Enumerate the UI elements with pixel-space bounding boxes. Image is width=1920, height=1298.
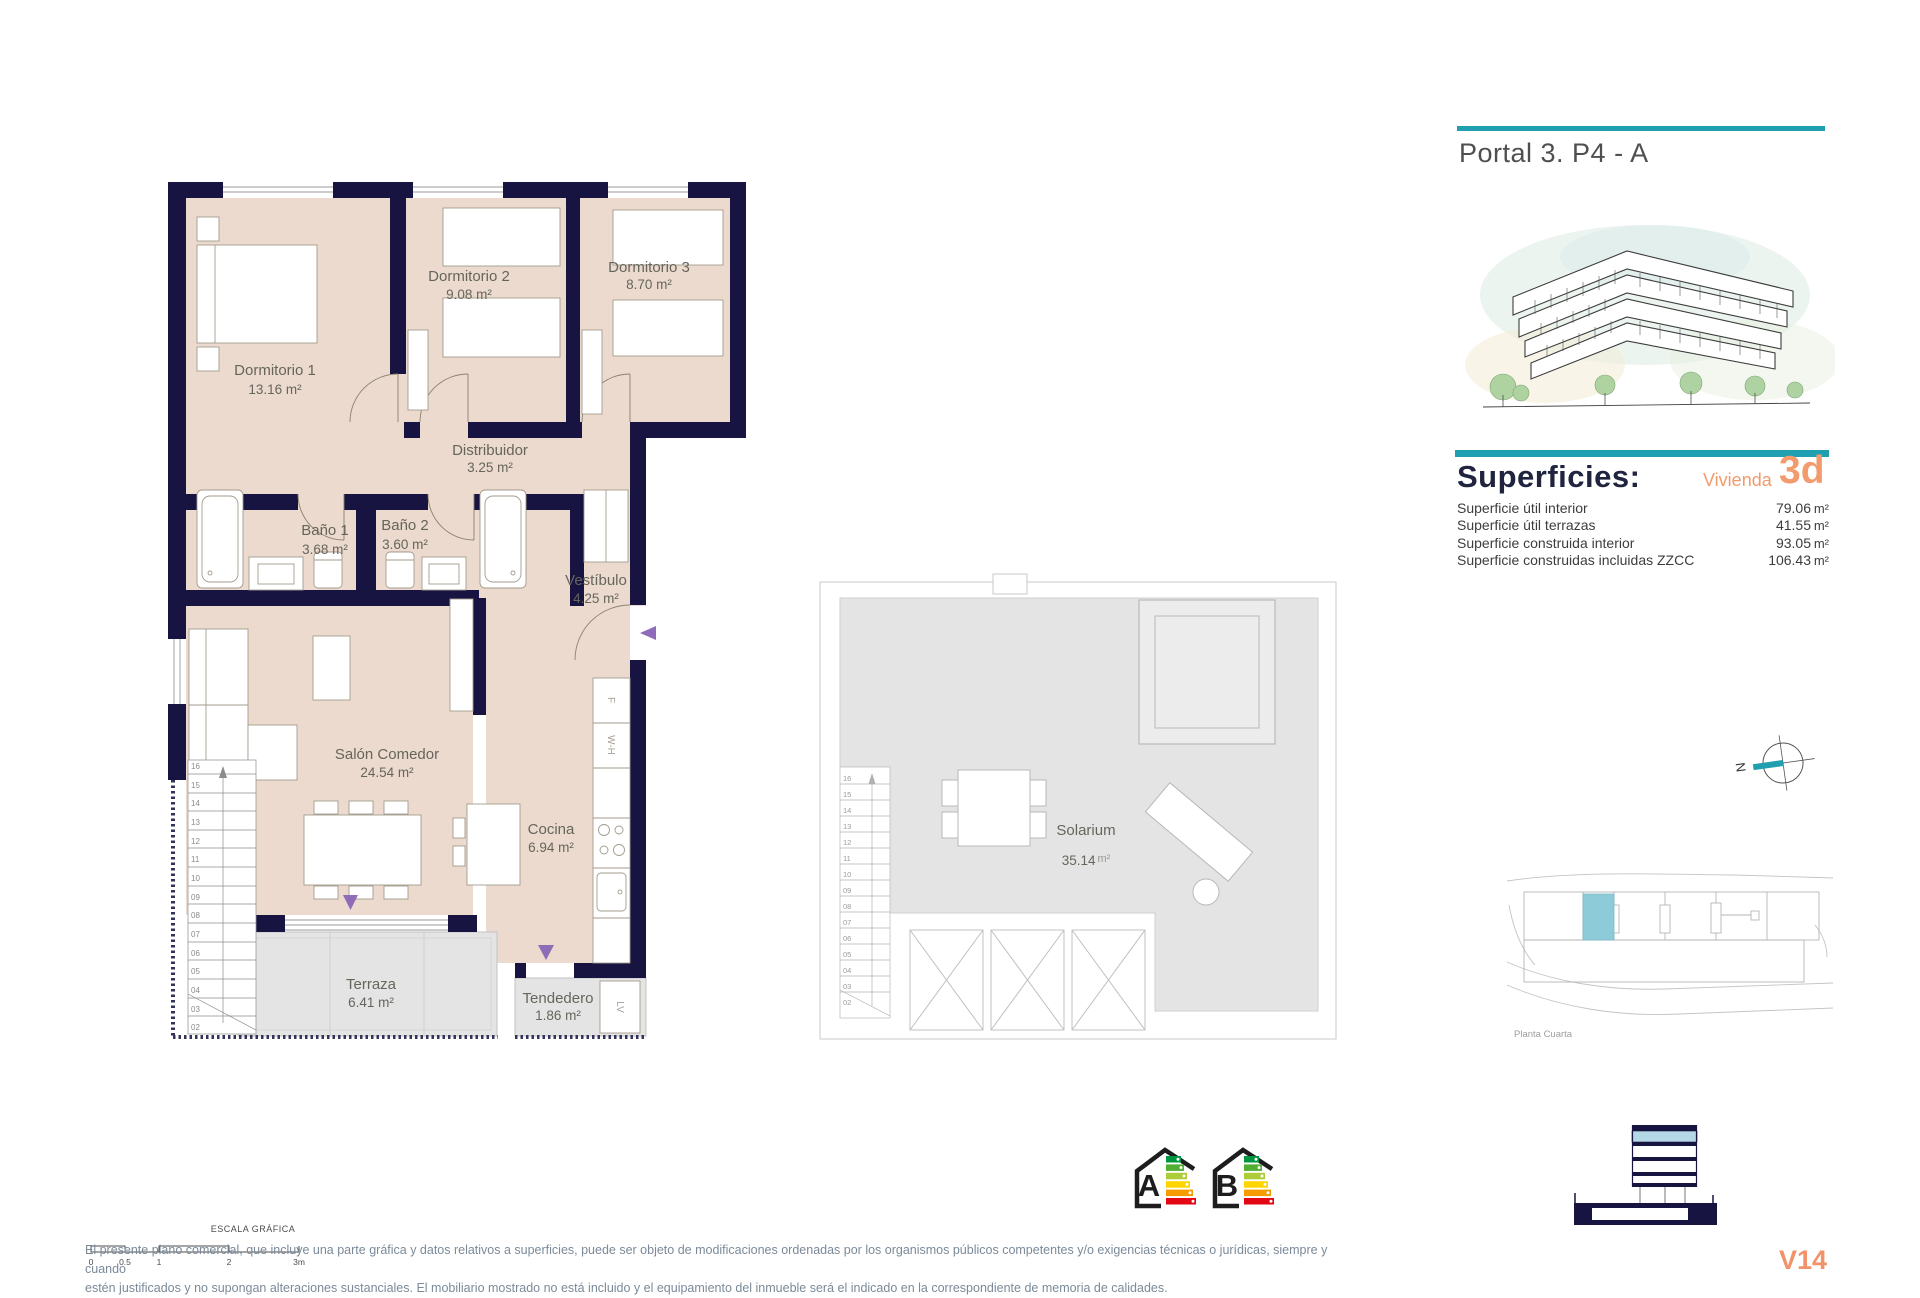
- stair-numbers-solarium: 16 15 14 13 12 11 10 09 08 07 06 05 04 0…: [843, 774, 851, 1007]
- svg-text:09: 09: [843, 886, 851, 895]
- svg-text:10: 10: [843, 870, 851, 879]
- svg-text:03: 03: [191, 1005, 200, 1014]
- svg-text:02: 02: [191, 1023, 200, 1032]
- svg-text:13: 13: [191, 818, 200, 827]
- superficies-table: Superficie útil interior 79.06 m² Superf…: [1457, 500, 1829, 570]
- svg-text:15: 15: [843, 790, 851, 799]
- svg-text:16: 16: [191, 762, 200, 771]
- tv-unit: [313, 636, 350, 700]
- energy-badge-b-icon: B: [1208, 1144, 1282, 1212]
- svg-text:03: 03: [843, 982, 851, 991]
- svg-text:08: 08: [191, 911, 200, 920]
- section-highlight-floor: [1632, 1131, 1697, 1142]
- svg-text:3.25 m²: 3.25 m²: [467, 460, 513, 475]
- svg-text:14: 14: [843, 806, 851, 815]
- svg-text:9.08 m²: 9.08 m²: [446, 287, 492, 302]
- superficies-row: Superficie útil terrazas 41.55 m²: [1457, 517, 1829, 534]
- superficies-row: Superficie útil interior 79.06 m²: [1457, 500, 1829, 517]
- page: { "header": { "title": "Portal 3. P4 - A…: [0, 0, 1920, 1280]
- building-section: [1565, 1115, 1740, 1233]
- svg-text:09: 09: [191, 893, 200, 902]
- section-tower: [1632, 1125, 1697, 1187]
- compass-icon: N: [1735, 733, 1827, 795]
- svg-text:06: 06: [191, 949, 200, 958]
- washer-label: LV: [614, 1001, 625, 1013]
- water-heater-label: W-H: [605, 735, 616, 755]
- label-terraza: Terraza: [346, 976, 397, 993]
- vestibulo-wardrobe: [584, 490, 628, 562]
- svg-text:12: 12: [843, 838, 851, 847]
- superficies-row: Superficie construidas incluidas ZZCC 10…: [1457, 552, 1829, 569]
- solarium-skylight-box: [1139, 600, 1275, 744]
- dorm2-closet: [408, 330, 428, 410]
- label-dormitorio3: Dormitorio 3: [608, 259, 690, 276]
- svg-text:8.70 m²: 8.70 m²: [626, 277, 672, 292]
- page-title: Portal 3. P4 - A: [1459, 138, 1649, 169]
- svg-text:04: 04: [191, 986, 200, 995]
- dorm3-closet: [582, 330, 602, 414]
- svg-text:13.16 m²: 13.16 m²: [248, 382, 302, 397]
- energy-bars: [1166, 1156, 1196, 1205]
- version-tag: V14: [1779, 1245, 1827, 1276]
- solarium-plan: 16 15 14 13 12 11 10 09 08 07 06 05 04 0…: [814, 558, 1344, 1045]
- label-cocina: Cocina: [528, 821, 575, 838]
- label-tendedero: Tendedero: [523, 990, 594, 1007]
- site-plan-caption: Planta Cuarta: [1514, 1029, 1573, 1040]
- energy-badge-a-icon: A: [1130, 1144, 1204, 1212]
- entrance-arrow: [640, 626, 656, 640]
- svg-text:Solarium: Solarium: [1056, 822, 1115, 839]
- stairs-solarium: 16 15 14 13 12 11 10 09 08 07 06 05 04 0…: [840, 767, 890, 1018]
- title-rule: [1457, 126, 1825, 131]
- svg-text:12: 12: [191, 837, 200, 846]
- svg-text:08: 08: [843, 902, 851, 911]
- kitchen-cabinet: [450, 599, 473, 711]
- site-roads: [1507, 874, 1833, 1015]
- svg-text:07: 07: [191, 930, 200, 939]
- svg-text:3.68 m²: 3.68 m²: [302, 542, 348, 557]
- svg-text:14: 14: [191, 799, 200, 808]
- svg-text:6.41 m²: 6.41 m²: [348, 995, 394, 1010]
- svg-text:11: 11: [191, 855, 200, 864]
- disclaimer: El presente plano comercial, que incluye…: [85, 1241, 1355, 1298]
- svg-text:05: 05: [191, 967, 200, 976]
- site-plan: Planta Cuarta: [1505, 865, 1835, 1045]
- svg-text:04: 04: [843, 966, 851, 975]
- svg-text:4.25 m²: 4.25 m²: [573, 591, 619, 606]
- superficies-row: Superficie construida interior 93.05 m²: [1457, 535, 1829, 552]
- energy-rating-letter: B: [1216, 1168, 1238, 1203]
- label-distribuidor: Distribuidor: [452, 442, 528, 459]
- label-vestibulo: Vestíbulo: [565, 572, 627, 589]
- north-label: N: [1735, 762, 1749, 773]
- vivienda-code: 3d: [1779, 449, 1825, 493]
- stair-numbers-main: 16 15 14 13 12 11 10 09 08 07 06 05 04 0…: [191, 762, 200, 1032]
- superficies-heading: Superficies:: [1457, 459, 1640, 495]
- dining-table: [304, 801, 421, 899]
- building-sketch: [1455, 195, 1835, 435]
- svg-text:06: 06: [843, 934, 851, 943]
- label-bano2: Baño 2: [381, 517, 429, 534]
- fridge-label: F: [605, 697, 616, 703]
- disclaimer-line-1: El presente plano comercial, que incluye…: [85, 1241, 1355, 1279]
- svg-text:02: 02: [843, 998, 851, 1007]
- stairs-main: 16 15 14 13 12 11 10 09 08 07 06 05 04 0…: [188, 760, 256, 1034]
- energy-rating-letter: A: [1138, 1168, 1160, 1203]
- svg-text:24.54 m²: 24.54 m²: [360, 765, 414, 780]
- site-building: [1524, 892, 1819, 982]
- vivienda-label: Vivienda: [1703, 470, 1772, 491]
- svg-text:1.86 m²: 1.86 m²: [535, 1008, 581, 1023]
- label-dormitorio2: Dormitorio 2: [428, 268, 510, 285]
- main-floor-plan: 16 15 14 13 12 11 10 09 08 07 06 05 04 0…: [168, 178, 748, 1044]
- svg-text:16: 16: [843, 774, 851, 783]
- label-salon: Salón Comedor: [335, 746, 439, 763]
- disclaimer-line-2: estén justificados y no supongan alterac…: [85, 1279, 1355, 1298]
- label-bano1: Baño 1: [301, 522, 349, 539]
- highlighted-unit: [1583, 894, 1614, 940]
- energy-bars: [1244, 1156, 1274, 1205]
- section-base: [1574, 1193, 1717, 1225]
- svg-text:13: 13: [843, 822, 851, 831]
- scale-bar-title: ESCALA GRÁFICA: [211, 1224, 296, 1234]
- solarium-table: [942, 770, 1046, 846]
- solarium-top-notch: [993, 574, 1027, 594]
- superficies-rule: [1455, 450, 1829, 457]
- svg-text:6.94 m²: 6.94 m²: [528, 840, 574, 855]
- svg-text:10: 10: [191, 874, 200, 883]
- svg-text:11: 11: [843, 854, 851, 863]
- svg-text:05: 05: [843, 950, 851, 959]
- svg-text:3.60 m²: 3.60 m²: [382, 537, 428, 552]
- kitchen-counter: [593, 678, 630, 963]
- svg-text:15: 15: [191, 781, 200, 790]
- label-dormitorio1: Dormitorio 1: [234, 362, 316, 379]
- solarium-glass-roofs: [910, 930, 1145, 1030]
- svg-text:07: 07: [843, 918, 851, 927]
